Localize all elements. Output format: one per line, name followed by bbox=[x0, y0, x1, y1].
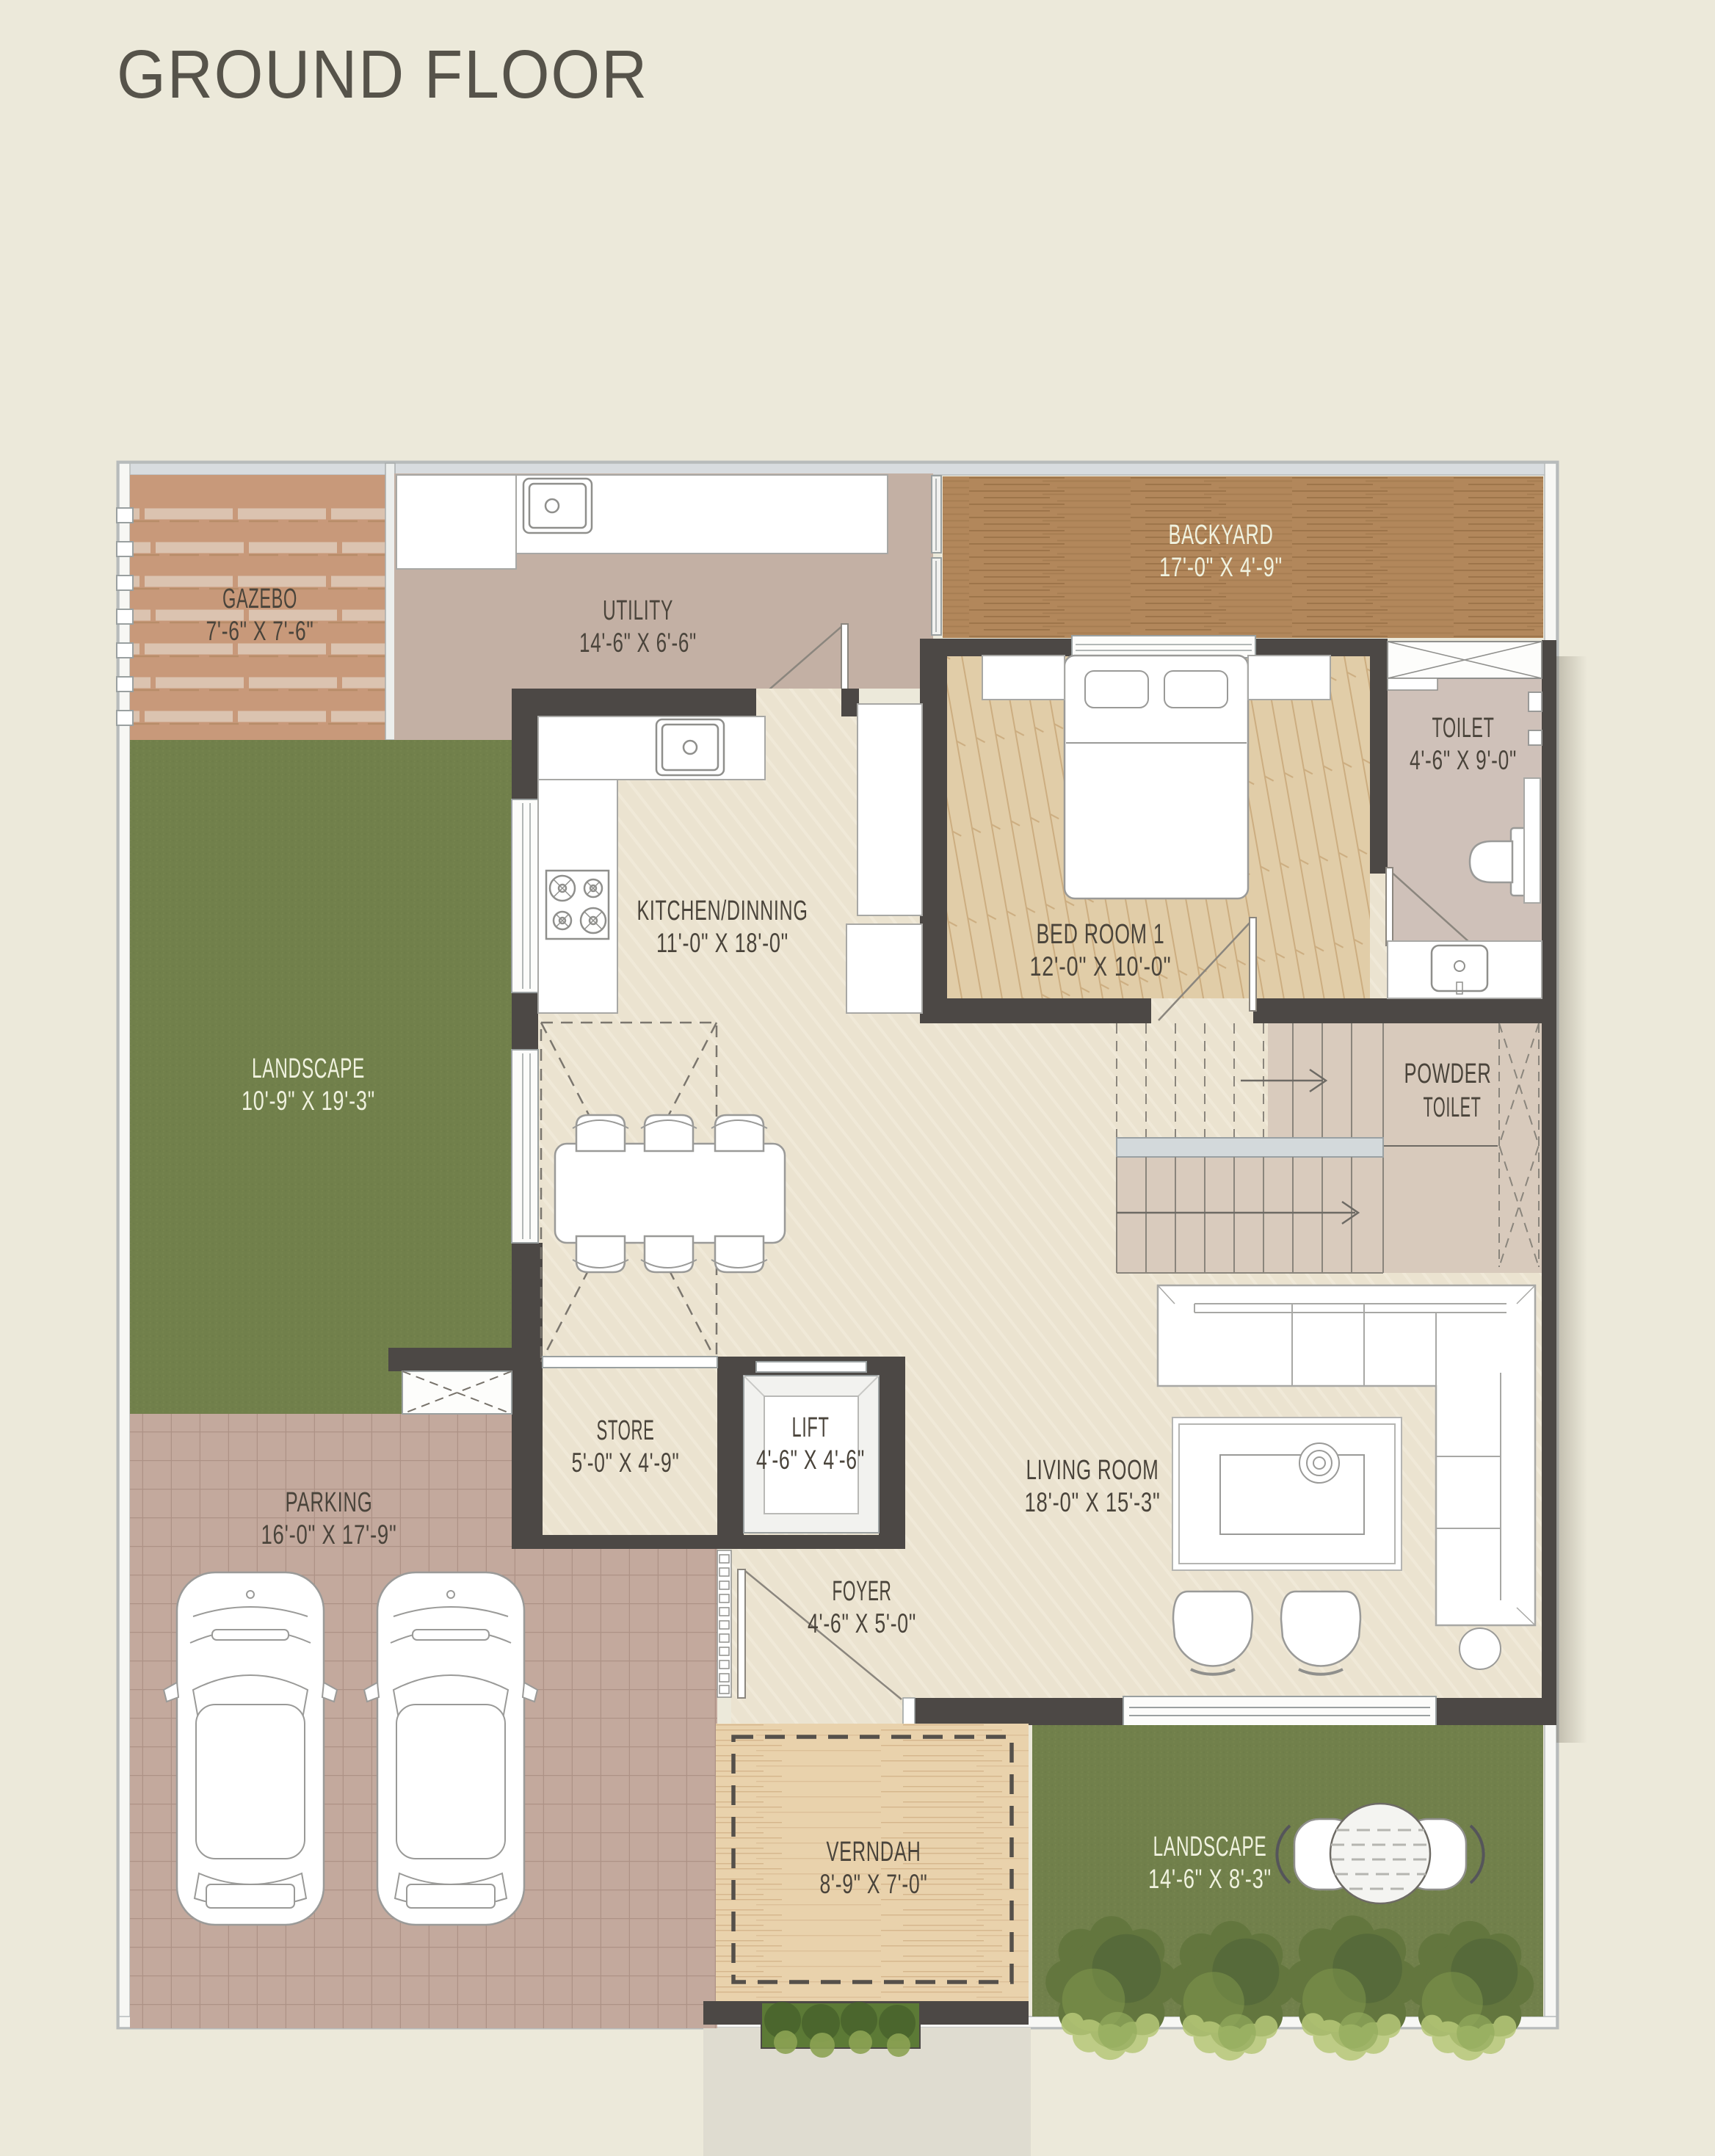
svg-text:LIVING ROOM: LIVING ROOM bbox=[1026, 1455, 1159, 1486]
svg-text:UTILITY: UTILITY bbox=[603, 595, 673, 626]
svg-text:17'-0" X 4'-9": 17'-0" X 4'-9" bbox=[1159, 552, 1283, 582]
svg-text:4'-6" X 5'-0": 4'-6" X 5'-0" bbox=[808, 1608, 916, 1638]
svg-text:STORE: STORE bbox=[597, 1415, 655, 1446]
svg-text:KITCHEN/DINNING: KITCHEN/DINNING bbox=[637, 896, 808, 926]
svg-text:PARKING: PARKING bbox=[286, 1487, 373, 1518]
svg-text:VERNDAH: VERNDAH bbox=[827, 1837, 921, 1868]
svg-text:LANDSCAPE: LANDSCAPE bbox=[1153, 1832, 1267, 1862]
svg-text:4'-6" X 4'-6": 4'-6" X 4'-6" bbox=[756, 1445, 865, 1475]
svg-text:POWDER: POWDER bbox=[1404, 1059, 1492, 1089]
svg-text:TOILET: TOILET bbox=[1424, 1092, 1482, 1123]
svg-text:FOYER: FOYER bbox=[833, 1576, 892, 1607]
svg-text:14'-6" X 6'-6": 14'-6" X 6'-6" bbox=[579, 628, 697, 658]
svg-text:LANDSCAPE: LANDSCAPE bbox=[252, 1053, 365, 1084]
svg-text:10'-9" X 19'-3": 10'-9" X 19'-3" bbox=[242, 1086, 375, 1116]
svg-text:8'-9" X 7'-0": 8'-9" X 7'-0" bbox=[820, 1869, 928, 1899]
svg-text:4'-6" X 9'-0": 4'-6" X 9'-0" bbox=[1410, 745, 1517, 775]
svg-text:BED ROOM 1: BED ROOM 1 bbox=[1037, 919, 1165, 950]
svg-text:18'-0" X 15'-3": 18'-0" X 15'-3" bbox=[1025, 1487, 1161, 1517]
svg-text:TOILET: TOILET bbox=[1432, 713, 1495, 744]
svg-text:11'-0" X 18'-0": 11'-0" X 18'-0" bbox=[656, 928, 788, 958]
svg-text:5'-0" X 4'-9": 5'-0" X 4'-9" bbox=[572, 1448, 680, 1478]
svg-text:BACKYARD: BACKYARD bbox=[1169, 520, 1274, 551]
svg-text:12'-0" X 10'-0": 12'-0" X 10'-0" bbox=[1030, 951, 1172, 981]
svg-text:LIFT: LIFT bbox=[792, 1412, 830, 1443]
svg-text:14'-6" X 8'-3": 14'-6" X 8'-3" bbox=[1148, 1864, 1272, 1894]
svg-text:16'-0" X 17'-9": 16'-0" X 17'-9" bbox=[261, 1520, 397, 1550]
svg-text:GROUND FLOOR: GROUND FLOOR bbox=[117, 36, 648, 112]
svg-text:7'-6" X 7'-6": 7'-6" X 7'-6" bbox=[206, 616, 314, 646]
svg-text:GAZEBO: GAZEBO bbox=[222, 584, 297, 614]
